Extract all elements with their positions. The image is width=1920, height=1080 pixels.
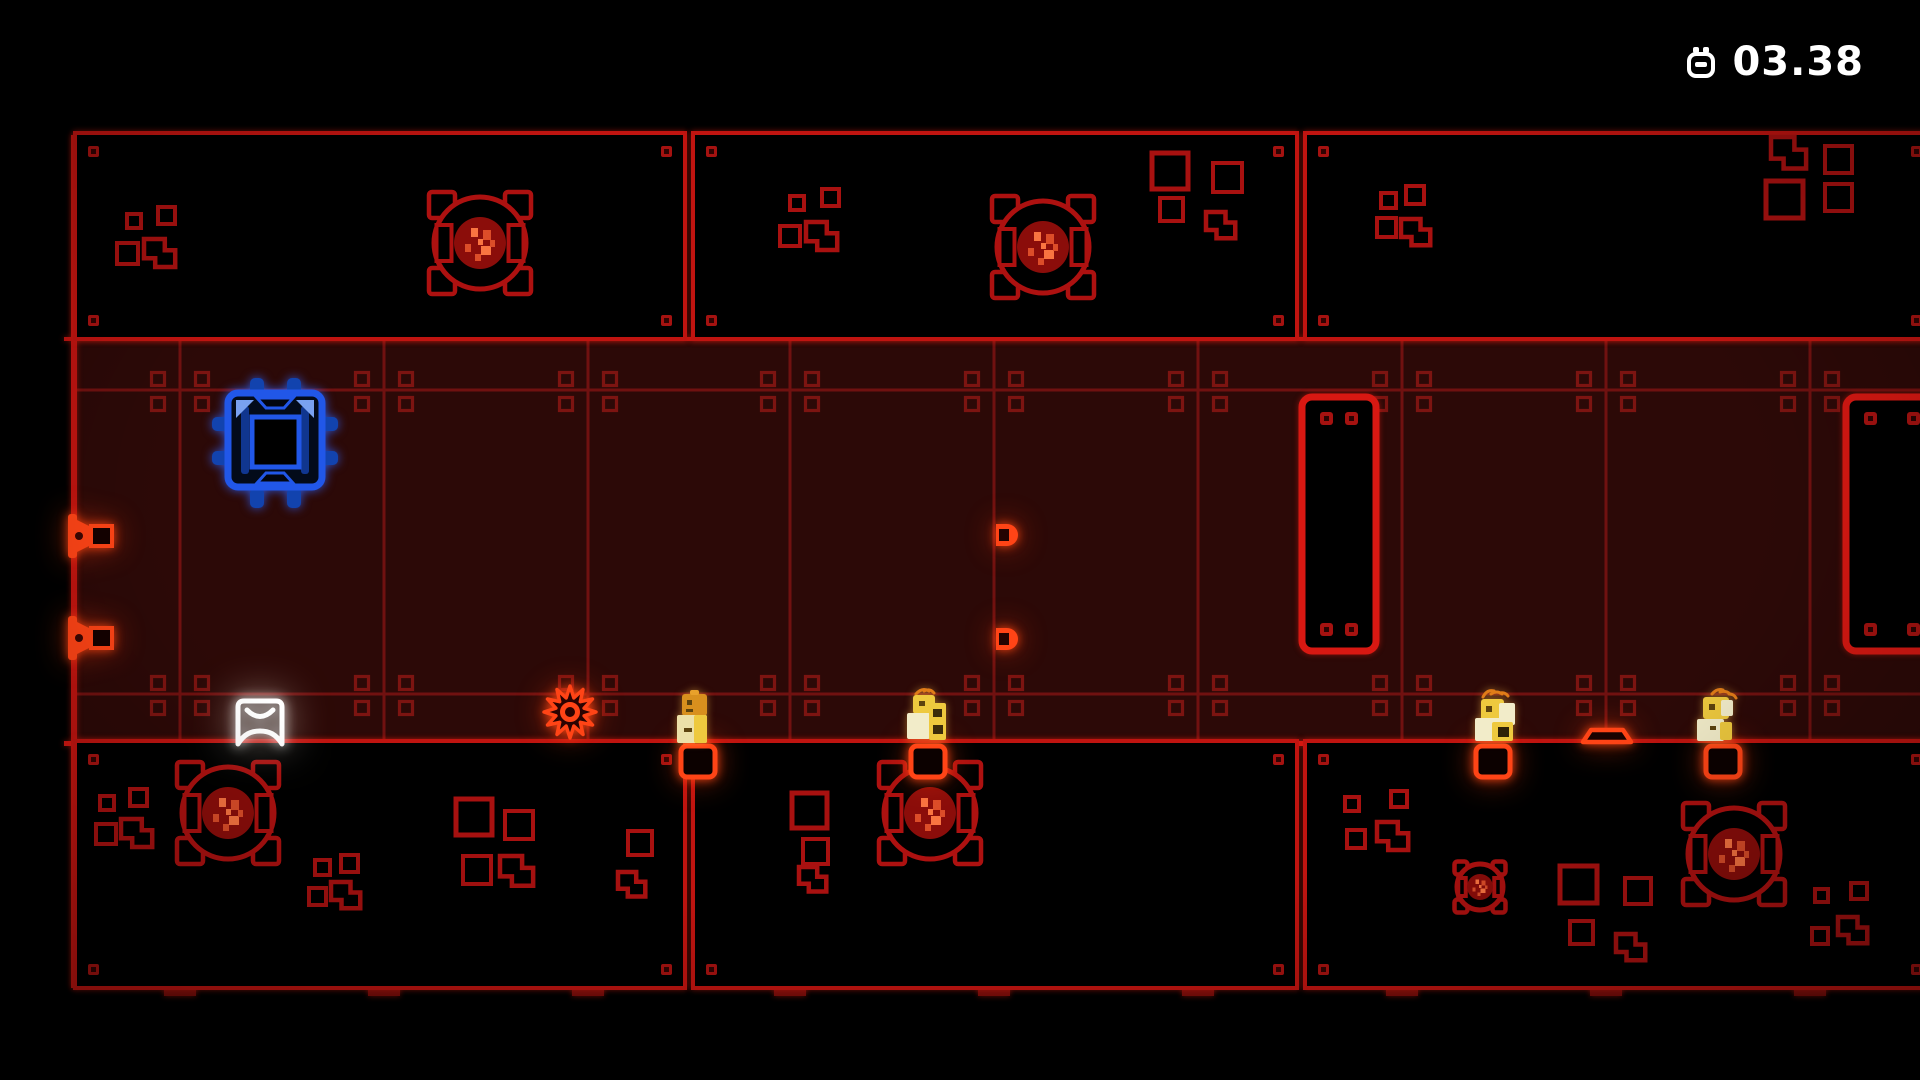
room-panel — [1305, 741, 1920, 988]
vent-fan — [177, 762, 279, 864]
timer-value: 03.38 — [1732, 42, 1864, 82]
stopwatch-icon — [1686, 45, 1716, 79]
machine-block — [212, 378, 338, 508]
game-scene — [0, 0, 1920, 1080]
pipe-emitter — [996, 524, 1018, 546]
floor-platform — [1583, 730, 1631, 742]
room-panel — [75, 133, 685, 339]
room-panel — [693, 133, 1297, 339]
room-panel — [75, 741, 685, 988]
vent-fan — [1683, 803, 1785, 905]
pipe-emitter — [996, 628, 1018, 650]
hud-timer: 03.38 — [1686, 42, 1864, 82]
vent-fan — [429, 192, 531, 294]
game-viewport[interactable]: 03.38 — [0, 0, 1920, 1080]
floor-hatch — [1706, 746, 1740, 777]
floor-hatch — [911, 746, 945, 777]
door — [1846, 397, 1920, 651]
room-panel — [693, 741, 1297, 988]
vent-fan — [992, 196, 1094, 298]
floor-hatch — [1476, 746, 1510, 777]
vent-fan — [1455, 862, 1506, 913]
room-panel — [1305, 133, 1920, 339]
door — [1302, 397, 1376, 651]
floor-hatch — [681, 746, 715, 777]
